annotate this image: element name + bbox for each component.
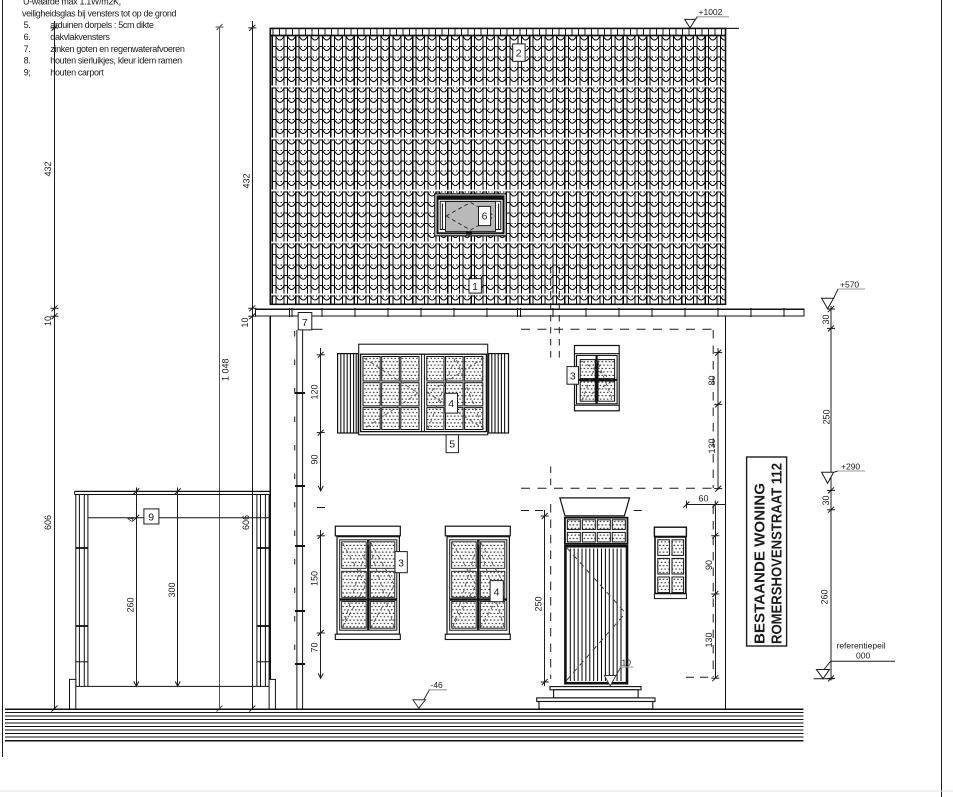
svg-text:4: 4 [494, 586, 500, 598]
svg-text:+290: +290 [841, 461, 860, 471]
svg-text:zinken goten en regenwaterafvo: zinken goten en regenwaterafvoeren [50, 44, 185, 54]
svg-text:9: 9 [148, 512, 154, 524]
svg-text:250: 250 [533, 596, 543, 611]
svg-text:260: 260 [820, 589, 830, 604]
svg-text:606: 606 [43, 515, 53, 530]
svg-text:30: 30 [821, 495, 831, 505]
svg-text:120: 120 [309, 384, 319, 399]
svg-text:4: 4 [448, 398, 454, 410]
svg-text:houten carport: houten carport [50, 68, 104, 78]
svg-text:432: 432 [43, 161, 53, 176]
svg-text:U-waarde max 1.1W/m2K,: U-waarde max 1.1W/m2K, [23, 0, 121, 7]
svg-text:3: 3 [398, 557, 404, 569]
svg-text:150: 150 [309, 571, 319, 586]
svg-text:9;: 9; [24, 68, 31, 78]
svg-text:5.: 5. [24, 20, 31, 30]
svg-text:7.: 7. [24, 44, 31, 54]
svg-text:ROMERSHOVENSTRAAT 112: ROMERSHOVENSTRAAT 112 [770, 463, 786, 644]
svg-text:80: 80 [707, 375, 717, 385]
svg-text:130: 130 [707, 438, 717, 453]
svg-text:7: 7 [302, 317, 308, 329]
svg-text:260: 260 [126, 597, 136, 612]
svg-text:3: 3 [570, 371, 576, 383]
svg-text:arduinen dorpels : 5cm dikte: arduinen dorpels : 5cm dikte [50, 20, 154, 30]
svg-text:60: 60 [699, 494, 709, 504]
svg-text:250: 250 [822, 409, 832, 424]
svg-text:30: 30 [821, 314, 831, 324]
svg-text:houten sierluikjes, kleur idem: houten sierluikjes, kleur idem ramen [50, 56, 182, 66]
svg-text:90: 90 [309, 454, 319, 464]
svg-text:432: 432 [242, 173, 252, 188]
svg-text:6: 6 [482, 211, 488, 223]
svg-text:+1002: +1002 [699, 7, 723, 17]
svg-text:8.: 8. [24, 56, 31, 66]
svg-text:2: 2 [516, 48, 522, 60]
svg-text:10: 10 [240, 317, 250, 327]
svg-text:90: 90 [704, 560, 714, 570]
svg-text:dakvlakvensters: dakvlakvensters [50, 32, 110, 42]
svg-text:1: 1 [472, 281, 478, 293]
svg-text:+570: +570 [840, 279, 859, 289]
svg-text:BESTAANDE WONING: BESTAANDE WONING [753, 483, 769, 644]
svg-text:130: 130 [704, 632, 714, 647]
svg-text:10: 10 [622, 657, 632, 667]
svg-text:6.: 6. [24, 32, 31, 42]
svg-text:10: 10 [43, 316, 53, 326]
svg-text:000: 000 [856, 651, 870, 661]
svg-text:-46: -46 [431, 680, 444, 690]
svg-text:1 048: 1 048 [221, 358, 231, 381]
svg-text:300: 300 [167, 582, 177, 597]
svg-text:veiligheidsglas bij vensters t: veiligheidsglas bij vensters tot op de g… [22, 8, 177, 18]
svg-text:referentiepeil: referentiepeil [837, 641, 886, 651]
svg-text:70: 70 [309, 642, 319, 652]
svg-text:5: 5 [449, 439, 455, 451]
svg-text:4: 4 [126, 517, 136, 522]
